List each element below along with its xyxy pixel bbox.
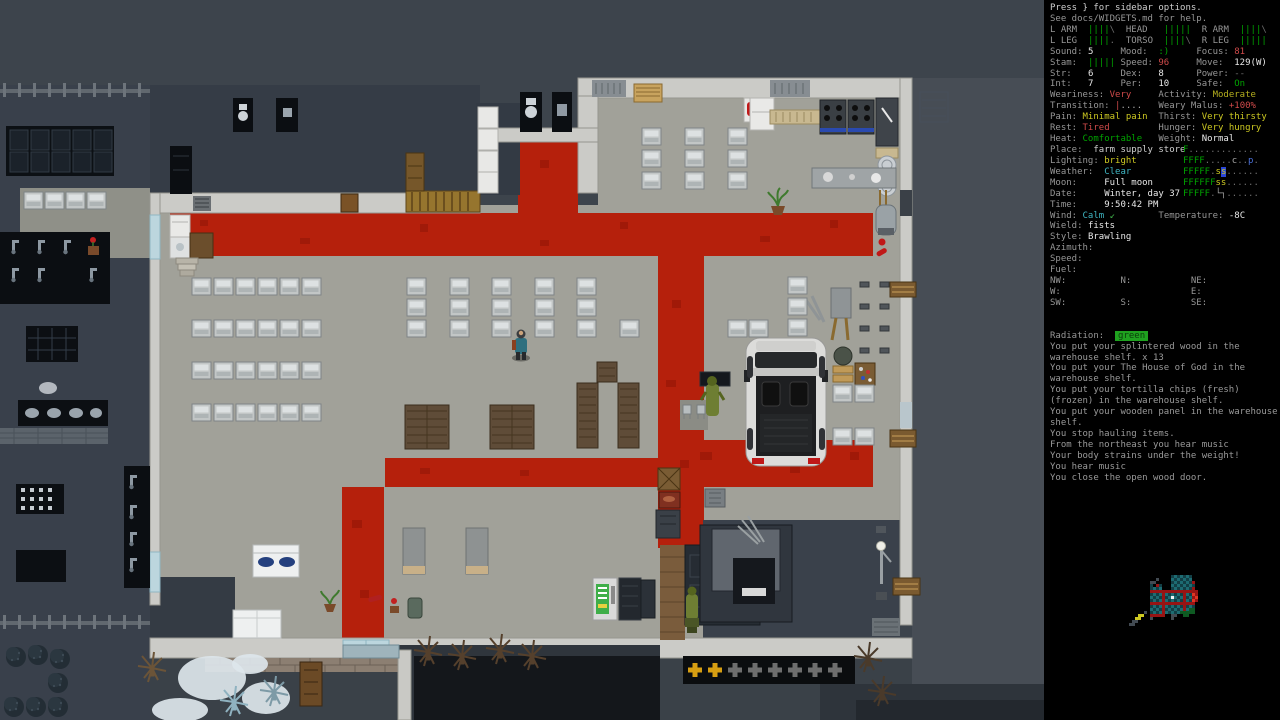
sidebar-line: (frozen) in the warehouse shelf.: [1050, 396, 1278, 407]
shrub: [28, 645, 48, 665]
sidebar-line: [1050, 320, 1278, 331]
sidebar-line: SW: S: SE:: [1050, 298, 1278, 309]
metal-shelf: [280, 404, 299, 421]
metal-shelf: [45, 192, 64, 209]
fence-post: [63, 615, 66, 629]
metal-shelf: [236, 278, 255, 295]
minimap-pixel: [1195, 599, 1198, 602]
sidebar-line: You hear music: [1050, 462, 1278, 473]
sidebar-line: You put your splintered wood in the: [1050, 342, 1278, 353]
shelf-item: [880, 304, 889, 309]
fence-post: [138, 615, 141, 629]
sidebar-line: You put your tortilla chips (fresh): [1050, 385, 1278, 396]
metal-shelf: [492, 299, 511, 316]
fence-post: [33, 615, 36, 629]
metal-shelf: [258, 404, 277, 421]
sidebar-line: NW: N: NE:: [1050, 276, 1278, 287]
metal-shelf: [642, 128, 661, 145]
sidebar-line: Sound: 5 Mood: :) Focus: 81: [1050, 47, 1278, 58]
metal-shelf: [642, 172, 661, 189]
wooden-shelf: [597, 362, 617, 382]
fence-post: [108, 615, 111, 629]
sidebar: Press } for sidebar options.See docs/WID…: [1044, 0, 1280, 720]
sidebar-line: warehouse shelf. x 13: [1050, 353, 1278, 364]
fence-post: [48, 83, 51, 97]
window: [150, 215, 160, 259]
vending-corner: [593, 578, 655, 620]
sidebar-line: warehouse shelf.: [1050, 374, 1278, 385]
metal-shelf: [258, 320, 277, 337]
minimap-pixel: [1156, 578, 1159, 581]
fence-post: [138, 83, 141, 97]
shrub: [4, 697, 24, 717]
freezer-units: [478, 107, 498, 193]
sidebar-line: shelf.: [1050, 418, 1278, 429]
shelf-item: [860, 326, 869, 331]
wooden-shelf: [618, 383, 639, 448]
overmap-line: FFFF.....c..p.: [1183, 156, 1259, 167]
fence-post: [108, 83, 111, 97]
sidebar-line: Transition: |.... Weary Malus: +100%: [1050, 101, 1278, 112]
metal-shelf: [302, 278, 321, 295]
minimap-pixel: [1141, 614, 1144, 617]
shrub: [26, 697, 46, 717]
overmap-line: FFFFF.└┐......: [1183, 189, 1259, 200]
metal-shelf: [535, 299, 554, 316]
metal-shelf: [407, 299, 426, 316]
workbench: [831, 288, 851, 318]
metal-shelf: [728, 320, 747, 337]
sidebar-line: Int: 7 Per: 10 Safe: On: [1050, 79, 1278, 90]
metal-shelf: [450, 299, 469, 316]
shelf-item: [880, 282, 889, 287]
overmap-line: F.............: [1183, 145, 1259, 156]
plank-pile: [634, 84, 662, 102]
sidebar-line: Heat: Comfortable Weight: Normal: [1050, 134, 1278, 145]
stove: [820, 100, 846, 134]
trash-can: [834, 347, 852, 365]
fence-post: [93, 83, 96, 97]
fence-post: [18, 615, 21, 629]
overmap-line: FFFFF.ss......: [1183, 167, 1259, 178]
log-pile: [890, 282, 916, 297]
metal-shelf: [728, 128, 747, 145]
sidebar-line: Time: 9:50:42 PM: [1050, 200, 1278, 211]
fence-post: [63, 83, 66, 97]
memory-above-store: [150, 85, 480, 193]
dark-counter: [876, 98, 898, 146]
seat: [762, 382, 780, 406]
street-right: [912, 78, 1044, 720]
wood-door: [300, 662, 322, 706]
game-map-viewport[interactable]: [0, 0, 1044, 720]
metal-shelf: [788, 298, 807, 315]
metal-shelf: [535, 278, 554, 295]
fence-post: [78, 83, 81, 97]
metal-shelf: [192, 320, 211, 337]
metal-shelf: [236, 320, 255, 337]
trash-bin: [408, 598, 422, 618]
window-dark: [900, 190, 912, 216]
fence-post: [123, 615, 126, 629]
metal-shelf: [302, 404, 321, 421]
sidebar-line: You put your wooden panel in the warehou…: [1050, 407, 1278, 418]
sidebar-line: Wield: fists: [1050, 221, 1278, 232]
dark-locker: [619, 578, 641, 620]
metal-shelf: [192, 362, 211, 379]
metal-shelf: [407, 278, 426, 295]
metal-shelf: [214, 320, 233, 337]
metal-shelf: [685, 150, 704, 167]
sidebar-line: Fuel:: [1050, 265, 1278, 276]
windshield: [755, 352, 817, 368]
overmap-line: FFFFFFss......: [1183, 178, 1259, 189]
fence-post: [3, 615, 6, 629]
fence-post: [33, 83, 36, 97]
minimap-pixel: [1162, 614, 1165, 617]
metal-shelf: [788, 277, 807, 294]
sidebar-line: Rest: Tired Hunger: Very hungry: [1050, 123, 1278, 134]
metal-shelf: [280, 320, 299, 337]
fence-post: [3, 83, 6, 97]
sidebar-line: Azimuth:: [1050, 243, 1278, 254]
metal-shelf: [192, 404, 211, 421]
metal-shelf: [258, 362, 277, 379]
seat: [790, 382, 808, 406]
game-map[interactable]: [0, 0, 1044, 720]
fence-post: [78, 615, 81, 629]
minimap-pixel: [1186, 614, 1189, 617]
log-pile: [890, 430, 916, 447]
fence-rail: [0, 621, 150, 625]
metal-shelf: [214, 362, 233, 379]
minimap-pixel: [1132, 623, 1135, 626]
metal-shelf: [577, 299, 596, 316]
sidebar-line: Wind: Calm ↙ Temperature: -8C: [1050, 211, 1278, 222]
metal-shelf: [642, 150, 661, 167]
sidebar-line: Speed:: [1050, 254, 1278, 265]
window: [150, 552, 160, 592]
fence-post: [48, 615, 51, 629]
fence-post: [93, 615, 96, 629]
metal-shelf: [620, 320, 639, 337]
wood-desk: [190, 233, 213, 258]
stove: [848, 100, 874, 134]
fence-post: [18, 83, 21, 97]
metal-shelf: [214, 404, 233, 421]
snow-patch: [242, 682, 290, 714]
shelf-item: [880, 326, 889, 331]
sidebar-line: [1050, 309, 1278, 320]
wood-door: [341, 194, 358, 212]
sidebar-line: Pain: Minimal pain Thirst: Very thirsty: [1050, 112, 1278, 123]
metal-shelf: [280, 362, 299, 379]
shelf-item: [860, 348, 869, 353]
metal-shelf: [66, 192, 85, 209]
sidebar-line: Your body strains under the weight!: [1050, 451, 1278, 462]
metal-shelf: [685, 128, 704, 145]
sidebar-line: See docs/WIDGETS.md for help.: [1050, 14, 1278, 25]
minimap-pixel: [1174, 614, 1177, 617]
metal-shelf: [535, 320, 554, 337]
metal-shelf: [236, 404, 255, 421]
cash-register-counter: [770, 110, 820, 124]
metal-shelf: [833, 385, 852, 402]
sidebar-line: You put your The House of God in the: [1050, 363, 1278, 374]
window: [900, 402, 912, 428]
game-window: { "palette": { "text":"#cfcfcf","label":…: [0, 0, 1280, 720]
metal-shelf: [685, 172, 704, 189]
metal-shelf: [492, 320, 511, 337]
metal-shelf: [450, 278, 469, 295]
fence-post: [123, 83, 126, 97]
shrub: [48, 697, 68, 717]
metal-shelf: [407, 320, 426, 337]
metal-shelf: [24, 192, 43, 209]
overmap-preview: F.............FFFF.....c..p.FFFFF.ss....…: [1183, 145, 1259, 200]
minimap-pixel: [1135, 620, 1138, 623]
sidebar-line: W: E:: [1050, 287, 1278, 298]
sidebar-line: Style: Brawling: [1050, 232, 1278, 243]
sidebar-line: From the northeast you hear music: [1050, 440, 1278, 451]
shelf-item: [860, 282, 869, 287]
metal-shelf: [302, 320, 321, 337]
minimap-pixel: [1144, 611, 1147, 614]
sidebar-line: Stam: ||||| Speed: 96 Move: 129(W): [1050, 58, 1278, 69]
minimap-pixel: [1150, 617, 1153, 620]
sidebar-line: L ARM ||||\ HEAD ||||| R ARM ||||\: [1050, 25, 1278, 36]
fence-rail: [0, 89, 150, 93]
shelf-item: [880, 348, 889, 353]
shrub: [48, 673, 68, 693]
metal-shelf: [214, 278, 233, 295]
metal-shelf: [87, 192, 106, 209]
sidebar-line: Weariness: Very Activity: Moderate: [1050, 90, 1278, 101]
metal-shelf: [788, 319, 807, 336]
pixel-minimap: [1126, 572, 1276, 642]
minimap-pixel: [1138, 617, 1141, 620]
sidebar-line: You stop hauling items.: [1050, 429, 1278, 440]
metal-shelf: [855, 385, 874, 402]
metal-shelf: [302, 362, 321, 379]
metal-shelf: [280, 278, 299, 295]
shrub: [6, 647, 26, 667]
shrub: [50, 649, 70, 669]
sidebar-line: You close the open wood door.: [1050, 473, 1278, 484]
metal-shelf: [492, 278, 511, 295]
metal-shelf: [749, 320, 768, 337]
metal-shelf: [577, 320, 596, 337]
metal-shelf: [728, 172, 747, 189]
sidebar-text: Press } for sidebar options.See docs/WID…: [1050, 3, 1278, 484]
snow-patch: [232, 654, 268, 674]
sidebar-line: Press } for sidebar options.: [1050, 3, 1278, 14]
metal-shelf: [833, 428, 852, 445]
sidebar-line: Str: 6 Dex: 8 Power: --: [1050, 69, 1278, 80]
minimap-pixel: [1192, 611, 1195, 614]
sidebar-line: Radiation: green: [1050, 331, 1278, 342]
metal-shelf: [577, 278, 596, 295]
metal-shelf: [728, 150, 747, 167]
window: [343, 645, 399, 658]
metal-shelf: [192, 278, 211, 295]
metal-shelf: [855, 428, 874, 445]
log-pile: [893, 578, 920, 595]
shelf-item: [860, 304, 869, 309]
metal-shelf: [236, 362, 255, 379]
wooden-shelf: [577, 383, 598, 448]
sidebar-line: L LEG ||||. TORSO ||||\ R LEG |||||: [1050, 36, 1278, 47]
minimap-pixel: [1171, 617, 1174, 620]
metal-shelf: [258, 278, 277, 295]
crafting-table: [855, 363, 875, 385]
metal-shelf: [450, 320, 469, 337]
